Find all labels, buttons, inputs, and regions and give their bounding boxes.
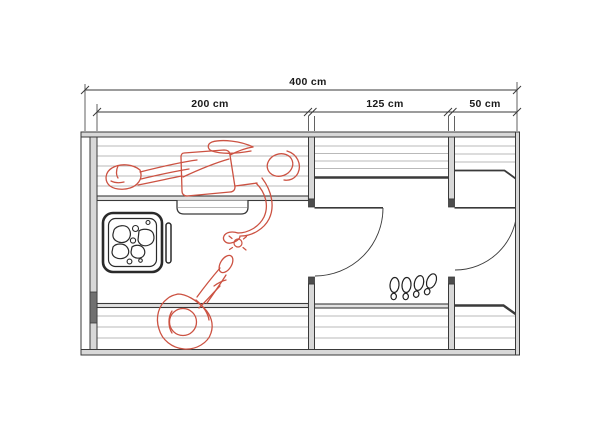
heater-stone	[146, 221, 150, 225]
shoe-toe	[401, 277, 411, 293]
shoe-toe	[389, 277, 399, 293]
dim-label-room-3: 50 cm	[469, 98, 500, 110]
heater-stone	[130, 238, 135, 243]
dimension-labels: 400 cm 200 cm 125 cm 50 cm	[191, 76, 500, 110]
wall-1-upper-cap	[309, 199, 315, 207]
wall-2-upper-cap	[449, 199, 455, 207]
left-wall-dark-segment	[90, 292, 97, 323]
shoe-toe	[425, 272, 439, 289]
shoe-heel	[423, 288, 430, 296]
heater-stone	[127, 259, 132, 264]
right-lower-bench-edge	[455, 306, 516, 315]
wall-2-lower-cap	[449, 277, 455, 284]
shoe-heel	[403, 293, 409, 300]
middle-lower-bench-edge	[315, 304, 449, 308]
right-wall	[516, 132, 520, 355]
shoe-heel	[413, 290, 420, 298]
door-swing-arc	[315, 208, 383, 276]
floor-plan-canvas: 400 cm 200 cm 125 cm 50 cm	[0, 0, 600, 438]
top-wall	[81, 132, 520, 137]
heater-stone	[131, 245, 145, 258]
heater-stone	[113, 226, 131, 243]
sauna-heater-icon	[103, 213, 162, 272]
wall-2-lower	[449, 284, 455, 350]
sauna-upper-bench-edge	[97, 196, 309, 201]
heater-stone	[133, 226, 139, 232]
heater-stone	[138, 229, 154, 246]
bottom-wall	[81, 350, 520, 356]
dim-label-room-2: 125 cm	[366, 98, 403, 110]
dim-label-total: 400 cm	[289, 76, 326, 88]
heater-stone	[112, 244, 129, 259]
figure-foot	[216, 253, 235, 275]
door-2	[455, 208, 518, 270]
shoe-heel	[391, 293, 397, 300]
door-swing-arc	[455, 208, 517, 270]
wall-2-upper	[449, 137, 455, 199]
shoe-toe	[413, 275, 425, 292]
wall-1-lower	[309, 284, 315, 350]
figure-leg	[197, 268, 220, 297]
doors	[315, 208, 518, 276]
wall-1-upper	[309, 137, 315, 199]
wall-1-lower-cap	[309, 277, 315, 284]
door-1	[315, 208, 384, 276]
heater-rail-icon	[166, 223, 171, 263]
sauna-floor-plan: 400 cm 200 cm 125 cm 50 cm	[0, 0, 600, 438]
sitting-person-figure	[157, 253, 235, 349]
dim-label-room-1: 200 cm	[191, 98, 228, 110]
footprints-icon	[389, 272, 438, 300]
heater-stone	[139, 259, 143, 263]
figure-head	[264, 150, 296, 180]
figure-arm-folded	[208, 141, 253, 154]
right-bench-edge	[455, 171, 516, 179]
figure-towel	[181, 150, 235, 196]
dimension-lines	[81, 82, 521, 131]
figure-head	[170, 309, 197, 336]
